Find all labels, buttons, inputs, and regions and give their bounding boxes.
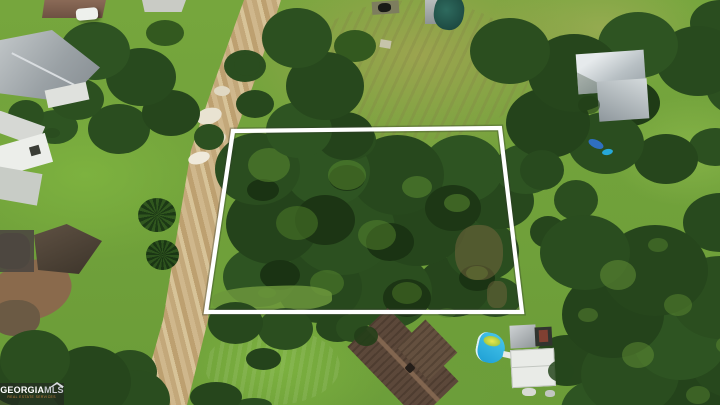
watermark-badge: GEORGIAMLS REAL ESTATE SERVICES (0, 383, 64, 405)
watermark-tagline: REAL ESTATE SERVICES (8, 396, 56, 399)
boundary-outline-shadow (206, 128, 522, 312)
boundary-outline (206, 128, 522, 312)
aerial-photo: GEORGIAMLS REAL ESTATE SERVICES (0, 0, 720, 405)
property-boundary-overlay (0, 0, 720, 405)
watermark-brand: GEORGIAMLS (0, 386, 64, 395)
watermark-brand-primary: GEORGIA (0, 386, 44, 395)
watermark-brand-secondary: MLS (44, 386, 64, 395)
